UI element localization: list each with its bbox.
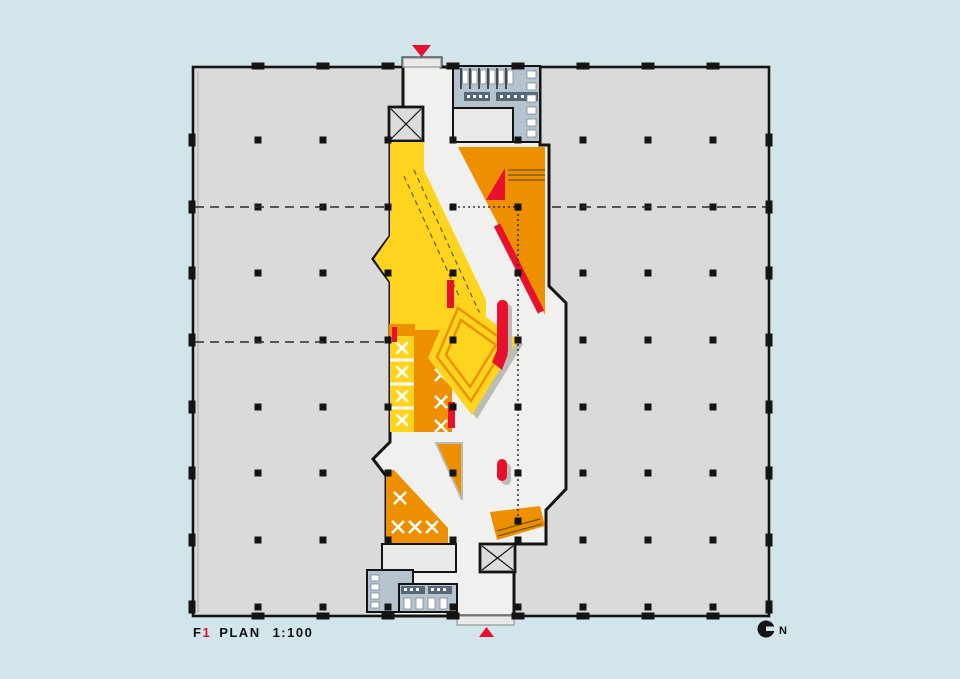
column-marker xyxy=(645,137,652,144)
column-marker xyxy=(645,537,652,544)
grid-tick-left xyxy=(189,601,196,614)
column-marker xyxy=(385,537,392,544)
column-marker xyxy=(450,470,457,477)
floor-plan-drawing: N F1PLAN1:100 xyxy=(0,0,960,679)
grid-tick-bottom xyxy=(252,613,265,620)
column-marker xyxy=(255,137,262,144)
grid-tick-top xyxy=(382,63,395,70)
north-symbol-notch xyxy=(766,627,777,632)
room-bottom xyxy=(382,544,456,572)
grid-tick-left xyxy=(189,401,196,414)
floor-number: 1 xyxy=(202,625,211,640)
grid-tick-bottom xyxy=(317,613,330,620)
column-marker xyxy=(710,137,717,144)
grid-tick-bottom xyxy=(382,613,395,620)
column-marker xyxy=(580,604,587,611)
column-marker xyxy=(255,604,262,611)
grid-tick-right xyxy=(766,267,773,280)
red-slot-small xyxy=(392,327,397,342)
column-marker xyxy=(320,470,327,477)
column-marker xyxy=(320,137,327,144)
column-marker xyxy=(255,404,262,411)
grid-tick-left xyxy=(189,467,196,480)
column-marker xyxy=(385,204,392,211)
grid-tick-left xyxy=(189,334,196,347)
column-marker xyxy=(710,537,717,544)
column-marker xyxy=(385,337,392,344)
column-marker xyxy=(710,270,717,277)
grid-tick-bottom xyxy=(577,613,590,620)
grid-tick-right xyxy=(766,134,773,147)
column-marker xyxy=(580,470,587,477)
column-marker xyxy=(580,270,587,277)
column-marker xyxy=(450,537,457,544)
entry-marker-bottom xyxy=(479,627,494,637)
column-marker xyxy=(580,337,587,344)
column-marker xyxy=(450,270,457,277)
grid-tick-left xyxy=(189,267,196,280)
plan-word: PLAN xyxy=(219,625,260,640)
grid-tick-left xyxy=(189,134,196,147)
column-marker xyxy=(385,470,392,477)
column-marker xyxy=(320,537,327,544)
grid-tick-right xyxy=(766,601,773,614)
grid-tick-right xyxy=(766,201,773,214)
column-marker xyxy=(255,470,262,477)
north-label: N xyxy=(779,625,787,637)
elevator-shaft-bottom xyxy=(480,544,515,572)
column-marker xyxy=(580,404,587,411)
grid-tick-top xyxy=(577,63,590,70)
grid-tick-bottom xyxy=(447,613,460,620)
column-marker xyxy=(385,137,392,144)
red-bench xyxy=(497,300,508,356)
column-marker xyxy=(320,604,327,611)
grid-tick-bottom xyxy=(512,613,525,620)
column-marker xyxy=(710,604,717,611)
grid-tick-top xyxy=(317,63,330,70)
column-marker xyxy=(450,404,457,411)
room-top xyxy=(453,108,513,142)
red-stool xyxy=(497,459,507,481)
entry-marker-top xyxy=(412,45,431,57)
column-marker xyxy=(580,537,587,544)
grid-tick-top xyxy=(512,63,525,70)
grid-tick-top xyxy=(447,63,460,70)
vestibule-bottom xyxy=(457,616,514,625)
column-marker xyxy=(450,337,457,344)
grid-tick-right xyxy=(766,534,773,547)
north-indicator: N xyxy=(758,621,788,638)
column-marker xyxy=(385,604,392,611)
column-marker xyxy=(645,270,652,277)
grid-tick-top xyxy=(642,63,655,70)
column-marker xyxy=(645,604,652,611)
plan-scale: 1:100 xyxy=(273,625,314,640)
column-marker xyxy=(255,537,262,544)
column-marker xyxy=(645,470,652,477)
plan-title: F1PLAN1:100 xyxy=(193,625,313,640)
vestibule-top xyxy=(403,58,441,67)
grid-tick-bottom xyxy=(642,613,655,620)
grid-tick-bottom xyxy=(707,613,720,620)
elevator-shaft-top xyxy=(389,107,423,141)
column-marker xyxy=(385,270,392,277)
grid-tick-right xyxy=(766,467,773,480)
grid-tick-top xyxy=(707,63,720,70)
column-marker xyxy=(385,404,392,411)
column-marker xyxy=(450,604,457,611)
grid-tick-left xyxy=(189,201,196,214)
grid-tick-top xyxy=(252,63,265,70)
column-marker xyxy=(320,270,327,277)
grid-tick-right xyxy=(766,334,773,347)
floor-letter: F xyxy=(193,625,202,640)
column-marker xyxy=(580,137,587,144)
column-marker xyxy=(450,137,457,144)
column-marker xyxy=(320,404,327,411)
column-marker xyxy=(515,137,522,144)
column-marker xyxy=(255,270,262,277)
column-marker xyxy=(710,337,717,344)
column-marker xyxy=(645,337,652,344)
column-marker xyxy=(710,404,717,411)
grid-tick-right xyxy=(766,401,773,414)
red-slot-band xyxy=(447,280,454,308)
grid-tick-left xyxy=(189,534,196,547)
column-marker xyxy=(515,604,522,611)
column-marker xyxy=(710,470,717,477)
floor-plan-page: N F1PLAN1:100 xyxy=(0,0,960,679)
column-marker xyxy=(645,404,652,411)
column-marker xyxy=(515,537,522,544)
